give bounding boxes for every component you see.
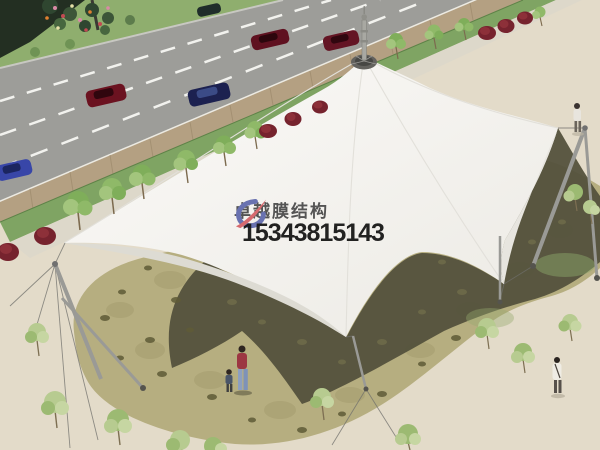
red-shrub [285, 112, 302, 126]
anchor-base [498, 300, 503, 305]
red-shrub [259, 124, 277, 138]
anchor-base [364, 387, 369, 392]
grass-patch [535, 253, 595, 277]
red-shrub [478, 26, 496, 40]
red-shrub [498, 19, 515, 33]
red-shrub [517, 12, 533, 25]
mast-cap [52, 261, 58, 267]
phone-number: 15343815143 [242, 219, 384, 248]
red-shrub [312, 101, 328, 114]
mast-cap [582, 125, 588, 131]
spire-ring [361, 30, 369, 33]
anchor-base [530, 263, 536, 269]
spire-ring [361, 40, 369, 43]
anchor-base [140, 385, 146, 391]
membrane-structure-rendering: 卓越膜结构 15343815143 [0, 0, 600, 450]
red-shrub [34, 227, 56, 245]
anchor-base [594, 275, 600, 281]
spire-ball [361, 14, 367, 20]
